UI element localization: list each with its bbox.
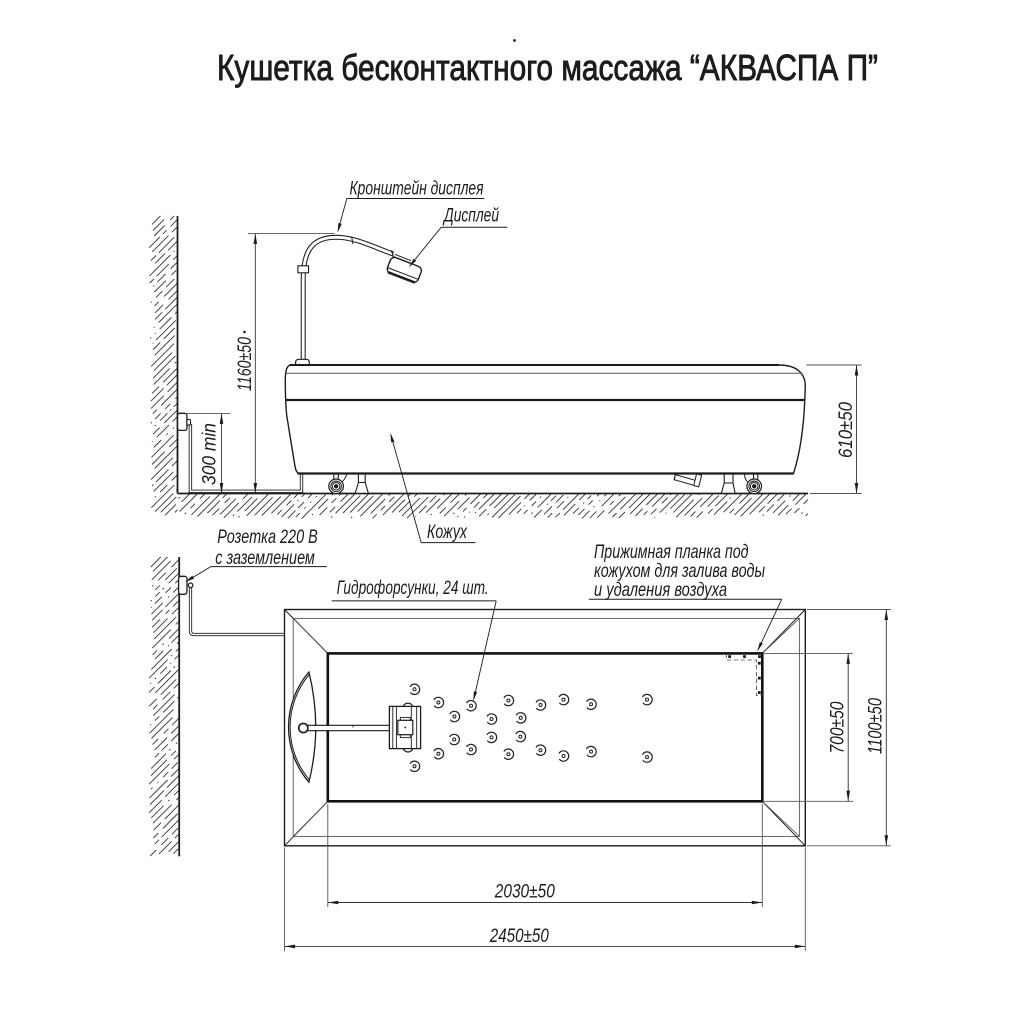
svg-text:2450±50: 2450±50: [489, 925, 549, 947]
svg-text:Дисплей: Дисплей: [443, 205, 500, 226]
svg-text:Кронштейн дисплея: Кронштейн дисплея: [350, 178, 484, 199]
svg-text:Прижимная планка под: Прижимная планка под: [594, 542, 749, 563]
svg-text:Кожух: Кожух: [427, 522, 468, 543]
svg-text:Гидрофорсунки, 24 шт.: Гидрофорсунки, 24 шт.: [337, 578, 489, 599]
svg-text:610±50: 610±50: [835, 402, 857, 458]
svg-text:Розетка 220 В: Розетка 220 В: [217, 527, 318, 548]
svg-text:300 min: 300 min: [199, 423, 221, 485]
svg-text:1160±50: 1160±50: [234, 337, 256, 391]
svg-text:Кушетка бесконтактного массажа: Кушетка бесконтактного массажа “АКВАСПА …: [217, 47, 878, 88]
svg-text:кожухом для залива воды: кожухом для залива воды: [594, 561, 765, 582]
svg-text:с заземлением: с заземлением: [215, 548, 314, 569]
svg-text:и удаления воздуха: и удаления воздуха: [594, 580, 727, 601]
svg-text:700±50: 700±50: [827, 701, 849, 753]
svg-text:1100±50: 1100±50: [865, 698, 887, 754]
svg-text:2030±50: 2030±50: [494, 881, 555, 903]
